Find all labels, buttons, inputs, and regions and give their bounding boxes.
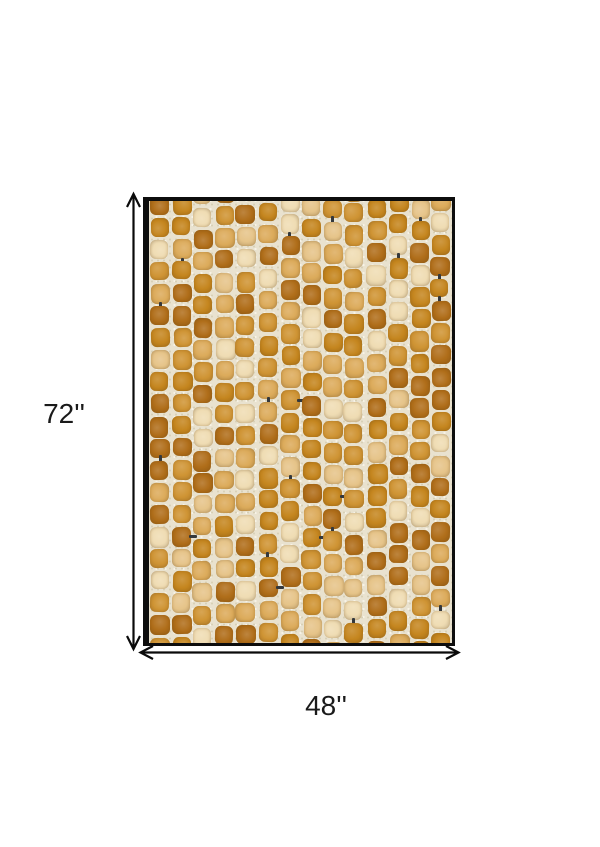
- rug-tile: [432, 390, 450, 410]
- rug-tile: [193, 197, 212, 204]
- rug-tile: [172, 305, 191, 325]
- rug-tile: [324, 288, 342, 309]
- rug-tile: [260, 424, 278, 444]
- rug-tile: [259, 490, 279, 509]
- rug-tile: [323, 575, 343, 595]
- rug-tile: [323, 487, 342, 506]
- rug-tile: [412, 530, 431, 550]
- rug-tile: [172, 438, 191, 456]
- rug-tile: [215, 272, 234, 293]
- rug-tile: [150, 372, 168, 392]
- rug-tile: [259, 468, 279, 489]
- rug-tile: [216, 582, 235, 602]
- rug-tile: [368, 486, 387, 506]
- rug-tile: [431, 610, 450, 629]
- rug-connector-mark: [276, 586, 284, 589]
- rug-tile: [235, 382, 254, 400]
- rug-tile: [215, 449, 234, 467]
- rug-connector-mark: [189, 535, 197, 538]
- rug-tile: [431, 522, 450, 542]
- rug-tile: [193, 495, 211, 514]
- rug-tile: [216, 560, 235, 578]
- rug-tile: [410, 618, 430, 639]
- rug-tile: [215, 626, 234, 646]
- rug-tile: [303, 329, 322, 348]
- rug-tile: [150, 306, 169, 326]
- rug-tile: [344, 579, 363, 598]
- rug-tile: [260, 247, 279, 265]
- rug-tile: [410, 442, 430, 460]
- arrowhead-down-icon: [127, 636, 140, 649]
- rug-tile: [324, 642, 343, 646]
- rug-tile: [431, 345, 451, 365]
- rug-tile: [259, 313, 277, 332]
- rug-tile: [194, 429, 213, 448]
- rug-tile: [323, 597, 342, 618]
- rug-tile: [410, 331, 430, 352]
- rug-tile: [150, 615, 170, 635]
- rug-tile: [281, 589, 300, 610]
- rug-tile: [412, 420, 430, 439]
- rug-tile: [150, 197, 169, 214]
- rug-tile: [388, 346, 407, 367]
- rug-tile: [324, 465, 343, 484]
- rug-tile: [259, 446, 278, 465]
- rug-tile: [192, 583, 212, 602]
- rug-tile: [344, 357, 363, 378]
- rug-tile: [323, 266, 342, 284]
- rug-tile: [430, 279, 449, 298]
- rug-tile: [235, 603, 255, 622]
- rug-tile: [172, 593, 190, 613]
- rug-tile: [235, 514, 254, 533]
- rug-tile: [172, 460, 191, 481]
- rug-tile: [344, 424, 363, 443]
- rug-tile: [172, 217, 191, 236]
- rug-tile: [368, 375, 387, 393]
- rug-tile: [390, 523, 409, 544]
- rug-tile: [368, 530, 387, 549]
- rug-tile: [235, 559, 254, 577]
- rug-tile: [323, 443, 341, 463]
- rug-tile: [151, 328, 170, 348]
- arrowhead-up-icon: [127, 194, 140, 207]
- rug-tile: [368, 398, 386, 417]
- rug-tile: [323, 332, 342, 351]
- rug-tile: [389, 633, 409, 646]
- arrowhead-left-icon: [141, 646, 154, 659]
- rug-tile: [367, 574, 386, 595]
- rug-tile: [344, 380, 363, 398]
- rug-tile: [345, 247, 363, 267]
- rug-tile: [259, 512, 278, 530]
- rug-tile: [323, 244, 342, 265]
- rug-tile: [432, 301, 451, 321]
- rug-tile: [344, 623, 364, 644]
- rug-tile: [323, 399, 342, 420]
- rug-tile: [259, 402, 277, 422]
- rug-tile: [324, 222, 343, 241]
- rug-tile: [280, 258, 299, 278]
- rug-tile: [193, 274, 211, 293]
- rug-tile: [193, 627, 211, 646]
- rug-tile: [193, 406, 212, 426]
- rug-tile: [323, 376, 342, 396]
- rug-tile: [193, 517, 211, 535]
- arrowhead-right-icon: [446, 646, 459, 659]
- rug-tile: [389, 214, 407, 233]
- rug-tile: [193, 384, 213, 402]
- rug-tile: [172, 416, 192, 434]
- rug-tile: [323, 553, 341, 572]
- rug-tile: [410, 375, 429, 396]
- rug-tile: [388, 501, 407, 522]
- rug-tile: [150, 416, 168, 437]
- rug-tile: [344, 314, 364, 334]
- rug-tile: [302, 219, 321, 237]
- rug-tile: [258, 197, 278, 199]
- rug-tile: [193, 451, 211, 472]
- rug-tile: [431, 633, 450, 646]
- rug-tile: [216, 294, 234, 312]
- rug-tile: [194, 362, 213, 382]
- rug-tile: [410, 287, 430, 307]
- rug-tile: [343, 402, 363, 422]
- rug-tile: [260, 335, 278, 355]
- rug-tile: [302, 594, 320, 615]
- rug-tile: [368, 199, 386, 218]
- rug-tile: [302, 484, 322, 503]
- rug-tile: [259, 269, 277, 288]
- rug-tile: [149, 505, 168, 525]
- rug-tile: [411, 486, 429, 507]
- rug-tile: [194, 318, 213, 339]
- rug-tile: [150, 239, 169, 258]
- rug-tile: [303, 417, 322, 437]
- rug-tile: [367, 464, 387, 484]
- rug-tile: [281, 412, 300, 432]
- rug-tile: [280, 479, 300, 498]
- rug-tile: [281, 324, 300, 344]
- rug-tile: [150, 460, 169, 480]
- rug-tile: [412, 574, 430, 594]
- rug-tile: [410, 243, 429, 263]
- rug-tile: [215, 427, 234, 446]
- rug-tile: [431, 434, 450, 453]
- rug-tile: [173, 504, 191, 522]
- height-dimension-label: 72'': [24, 400, 104, 428]
- rug-tile: [235, 205, 255, 224]
- rug-tile: [215, 604, 234, 623]
- rug-tile: [235, 315, 254, 335]
- rug-tile: [369, 420, 387, 439]
- rug-tile: [281, 368, 301, 388]
- rug-tile: [215, 316, 234, 337]
- rug-tile: [302, 462, 320, 480]
- rug-tile: [431, 544, 450, 564]
- rug-tile: [301, 307, 320, 328]
- rug-tile: [172, 261, 191, 280]
- rug-tile: [173, 350, 192, 370]
- rug-tile: [344, 446, 364, 465]
- rug-tile: [388, 324, 407, 342]
- rug-tile: [215, 383, 235, 402]
- rug-tile: [389, 258, 407, 279]
- rug-tile: [345, 225, 363, 245]
- rug-tile: [150, 637, 170, 646]
- rug-tile: [173, 283, 193, 302]
- rug-tile: [345, 556, 364, 575]
- rug-tile: [193, 230, 212, 249]
- rug-tile: [173, 482, 192, 502]
- rug-tile: [236, 197, 256, 201]
- rug-tile: [368, 596, 387, 615]
- rug-image: [143, 197, 455, 646]
- rug-tile: [215, 250, 234, 269]
- rug-tile: [173, 197, 192, 216]
- rug-tile: [389, 302, 408, 321]
- rug-tile: [237, 227, 256, 246]
- rug-tile: [430, 456, 450, 477]
- height-dimension-arrow: [127, 194, 140, 649]
- rug-tile: [151, 571, 169, 589]
- rug-tile: [150, 593, 170, 613]
- rug-tile: [216, 361, 235, 380]
- rug-tile: [302, 197, 320, 215]
- rug-tile: [323, 531, 342, 551]
- rug-tile: [302, 263, 321, 284]
- width-dimension-label: 48'': [286, 692, 366, 720]
- rug-tile: [281, 302, 300, 321]
- rug-tile: [215, 405, 234, 424]
- rug-tile: [215, 228, 235, 248]
- rug-tile: [344, 291, 364, 310]
- rug-tile: [259, 623, 278, 643]
- rug-tile: [215, 493, 235, 512]
- rug-tile: [235, 470, 254, 491]
- rug-tile: [366, 508, 386, 529]
- rug-tile: [149, 483, 168, 503]
- rug-tile: [259, 600, 278, 620]
- rug-tile: [281, 523, 300, 542]
- rug-tile: [390, 412, 408, 430]
- rug-tile: [303, 616, 321, 637]
- rug-tile: [259, 203, 278, 222]
- rug-tile: [302, 395, 321, 415]
- rug-tile: [193, 340, 212, 360]
- rug-tile: [216, 206, 234, 225]
- rug-tile: [323, 421, 343, 439]
- rug-tile: [260, 556, 278, 576]
- rug-tile: [431, 213, 449, 232]
- rug-tile: [150, 527, 169, 548]
- rug-tile: [324, 620, 342, 638]
- rug-tile: [281, 197, 300, 212]
- rug-tile: [410, 464, 429, 483]
- rug-tile: [344, 490, 364, 508]
- rug-tile: [389, 368, 408, 388]
- rug-tile: [368, 442, 387, 463]
- rug-tile: [236, 625, 256, 644]
- rug-tile: [259, 291, 277, 309]
- rug-tile: [412, 641, 430, 646]
- rug-tile: [367, 353, 387, 372]
- rug-tile: [390, 197, 409, 212]
- rug-tile: [303, 572, 323, 591]
- rug-tile: [411, 309, 430, 328]
- rug-tile: [214, 471, 234, 490]
- rug-tile: [344, 336, 362, 356]
- rug-tile: [368, 221, 387, 241]
- rug-tile: [215, 538, 233, 558]
- rug-tile: [173, 394, 191, 412]
- rug-tile: [366, 265, 386, 286]
- rug-tile: [236, 360, 255, 379]
- rug-tile: [193, 473, 213, 493]
- rug-tile: [193, 605, 211, 625]
- rug-tile: [431, 197, 451, 211]
- rug-tile: [389, 435, 408, 455]
- rug-tile: [173, 372, 193, 391]
- rug-tile: [280, 501, 298, 521]
- rug-tile: [151, 394, 170, 413]
- rug-tile: [216, 197, 235, 204]
- rug-tile: [301, 550, 321, 569]
- rug-tile: [302, 351, 322, 371]
- rug-tile: [324, 310, 342, 328]
- rug-tile: [303, 506, 322, 527]
- rug-tile: [281, 611, 300, 631]
- rug-tile: [173, 637, 191, 646]
- rug-tile: [432, 412, 451, 431]
- rug-tile: [389, 589, 408, 608]
- rug-tile: [301, 439, 321, 458]
- rug-tile: [172, 615, 192, 635]
- rug-tile: [236, 536, 255, 555]
- rug-tile: [280, 434, 300, 453]
- rug-tile: [323, 355, 342, 374]
- rug-tile: [432, 367, 451, 386]
- rug-tile: [236, 293, 255, 314]
- rug-tile: [236, 271, 255, 292]
- rug-tile: [258, 225, 278, 243]
- rug-tile: [410, 397, 429, 417]
- rug-tile: [368, 287, 387, 306]
- rug-tile: [281, 567, 301, 587]
- rug-tile: [173, 239, 192, 259]
- rug-tile: [303, 373, 322, 392]
- rug-tile: [345, 197, 364, 202]
- rug-tile: [389, 479, 408, 500]
- rug-tile: [389, 390, 409, 408]
- rug-tile: [430, 566, 449, 587]
- rug-tile: [280, 280, 299, 301]
- rug-tile: [281, 346, 300, 366]
- rug-tile: [411, 508, 430, 527]
- rug-tile: [389, 545, 408, 563]
- product-dimension-diagram: 72'' 48'': [0, 0, 600, 847]
- rug-tile: [281, 236, 300, 256]
- rug-tile: [368, 331, 386, 351]
- rug-tile: [368, 309, 387, 330]
- rug-tile: [366, 243, 386, 262]
- rug-tile: [302, 241, 321, 262]
- rug-tile: [192, 561, 212, 580]
- rug-tile: [431, 478, 449, 496]
- rug-tile: [193, 207, 212, 226]
- rug-tile: [367, 641, 387, 646]
- rug-tile: [411, 597, 430, 616]
- rug-tile: [192, 296, 212, 315]
- rug-tile: [389, 611, 407, 631]
- rug-tile: [235, 404, 255, 423]
- rug-tile: [412, 552, 430, 571]
- rug-tile: [389, 567, 409, 586]
- rug-tile: [172, 571, 191, 592]
- rug-tile: [344, 468, 363, 489]
- rug-tile: [411, 353, 429, 372]
- rug-tile: [411, 265, 430, 286]
- rug-tile: [281, 214, 299, 234]
- rug-tile: [344, 203, 363, 222]
- rug-tile: [150, 217, 168, 236]
- rug-tile: [431, 323, 451, 343]
- width-dimension-arrow: [141, 646, 459, 659]
- rug-tile: [390, 457, 408, 475]
- rug-tile: [235, 448, 255, 469]
- rug-tile: [150, 549, 168, 569]
- rug-tile: [236, 249, 255, 267]
- rug-tile: [367, 552, 386, 570]
- rug-tile: [388, 280, 408, 299]
- rug-tile: [345, 512, 364, 531]
- rug-tile: [236, 581, 256, 601]
- rug-tile: [215, 339, 235, 360]
- rug-tile: [258, 357, 277, 376]
- rug-tile: [150, 262, 169, 281]
- rug-tile: [344, 534, 363, 554]
- rug-tile: [432, 235, 450, 255]
- rug-tile: [215, 515, 234, 536]
- rug-tile: [173, 327, 192, 346]
- rug-tile: [193, 252, 213, 270]
- rug-tile: [236, 426, 256, 445]
- rug-tile: [235, 338, 254, 357]
- rug-tile: [303, 285, 321, 305]
- rug-tile: [235, 492, 255, 511]
- rug-tile: [280, 545, 299, 563]
- rug-tile: [302, 639, 321, 646]
- rug-tile: [281, 633, 299, 646]
- rug-tile: [367, 619, 385, 638]
- rug-tile: [172, 549, 191, 567]
- rug-tile: [193, 539, 211, 558]
- rug-tile: [430, 500, 450, 518]
- rug-tile: [344, 269, 363, 289]
- rug-tile: [151, 350, 170, 369]
- rug-tile: [411, 221, 430, 240]
